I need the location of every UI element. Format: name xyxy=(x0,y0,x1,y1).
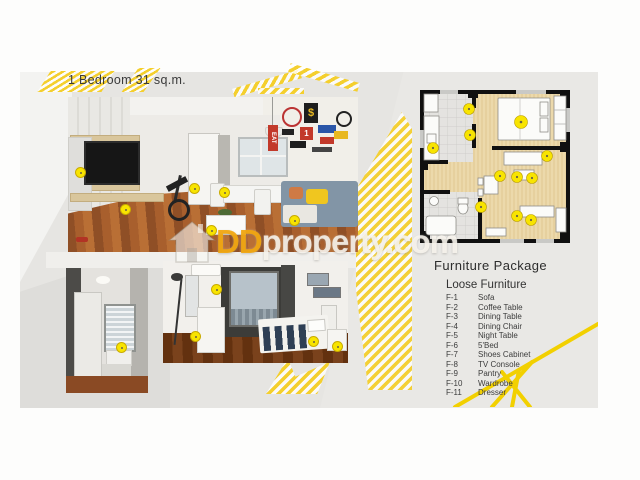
furniture-list-item: F-5Night Table xyxy=(446,331,530,341)
furniture-list-item: F-7Shoes Cabinet xyxy=(446,350,530,360)
furniture-marker-icon xyxy=(75,167,86,178)
furniture-list-item: F-10Wardrobe xyxy=(446,379,530,389)
furniture-list-item: F-9Pantry xyxy=(446,369,530,379)
watermark-text: DDproperty.com xyxy=(216,223,458,261)
background-facet xyxy=(20,72,72,282)
furniture-list-item: F-1Sofa xyxy=(446,293,530,303)
stripe-decoration xyxy=(258,88,304,94)
orange-pillow xyxy=(289,187,303,199)
dining-table xyxy=(223,185,283,203)
wall-art xyxy=(307,273,329,286)
furniture-list-item: F-2Coffee Table xyxy=(446,303,530,313)
hallway-photo xyxy=(66,268,148,393)
tall-cabinet xyxy=(74,292,102,386)
bed xyxy=(258,315,330,354)
unit-title: 1 Bedroom 31 sq.m. xyxy=(68,73,186,87)
wood-floor xyxy=(66,376,148,393)
yellow-pillow xyxy=(306,189,328,204)
furniture-marker-icon xyxy=(211,284,222,295)
furniture-marker-icon xyxy=(219,187,230,198)
furniture-marker-icon xyxy=(120,204,131,215)
black-decal xyxy=(282,129,294,135)
furniture-marker-icon xyxy=(189,183,200,194)
furniture-marker-icon xyxy=(332,341,343,352)
furniture-list-item: F-8TV Console xyxy=(446,360,530,370)
gray-decal xyxy=(312,147,332,152)
dining-chair xyxy=(254,189,271,215)
low-shelf xyxy=(70,193,164,202)
house-icon xyxy=(168,220,216,264)
furniture-list-item: F-11Dresser xyxy=(446,388,530,398)
dresser-vanity xyxy=(197,307,225,353)
loose-furniture-subheading: Loose Furniture xyxy=(446,279,527,291)
window xyxy=(238,137,288,177)
wall-art xyxy=(313,287,341,298)
furniture-list: F-1Sofa F-2Coffee Table F-3Dining Table … xyxy=(446,293,530,398)
number-sign-decal: 1 xyxy=(300,127,313,140)
watermark: DDproperty.com xyxy=(168,220,458,264)
red-decal xyxy=(320,137,334,144)
furniture-list-item: F-3Dining Table xyxy=(446,312,530,322)
shoes xyxy=(76,237,88,242)
dollar-sign-decal: $ xyxy=(304,103,318,123)
tv-screen xyxy=(84,141,140,185)
furniture-marker-icon xyxy=(308,336,319,347)
black-decal xyxy=(290,141,306,148)
exercise-bike-wheel xyxy=(168,199,190,221)
furniture-marker-icon xyxy=(116,342,127,353)
furniture-list-item: F-4Dining Chair xyxy=(446,322,530,332)
eat-sign-decal: EAT xyxy=(268,125,278,151)
floor-lamp-head xyxy=(171,273,183,281)
round-sign-decal xyxy=(282,107,302,127)
furniture-marker-icon xyxy=(190,331,201,342)
yellow-decal xyxy=(334,131,348,139)
ceiling-light xyxy=(96,276,110,284)
listing-image: 1 Bedroom 31 sq.m. EAT xyxy=(0,0,640,480)
round-decal xyxy=(336,111,352,127)
furniture-list-item: F-65'Bed xyxy=(446,341,530,351)
bedroom-photo xyxy=(163,261,348,363)
